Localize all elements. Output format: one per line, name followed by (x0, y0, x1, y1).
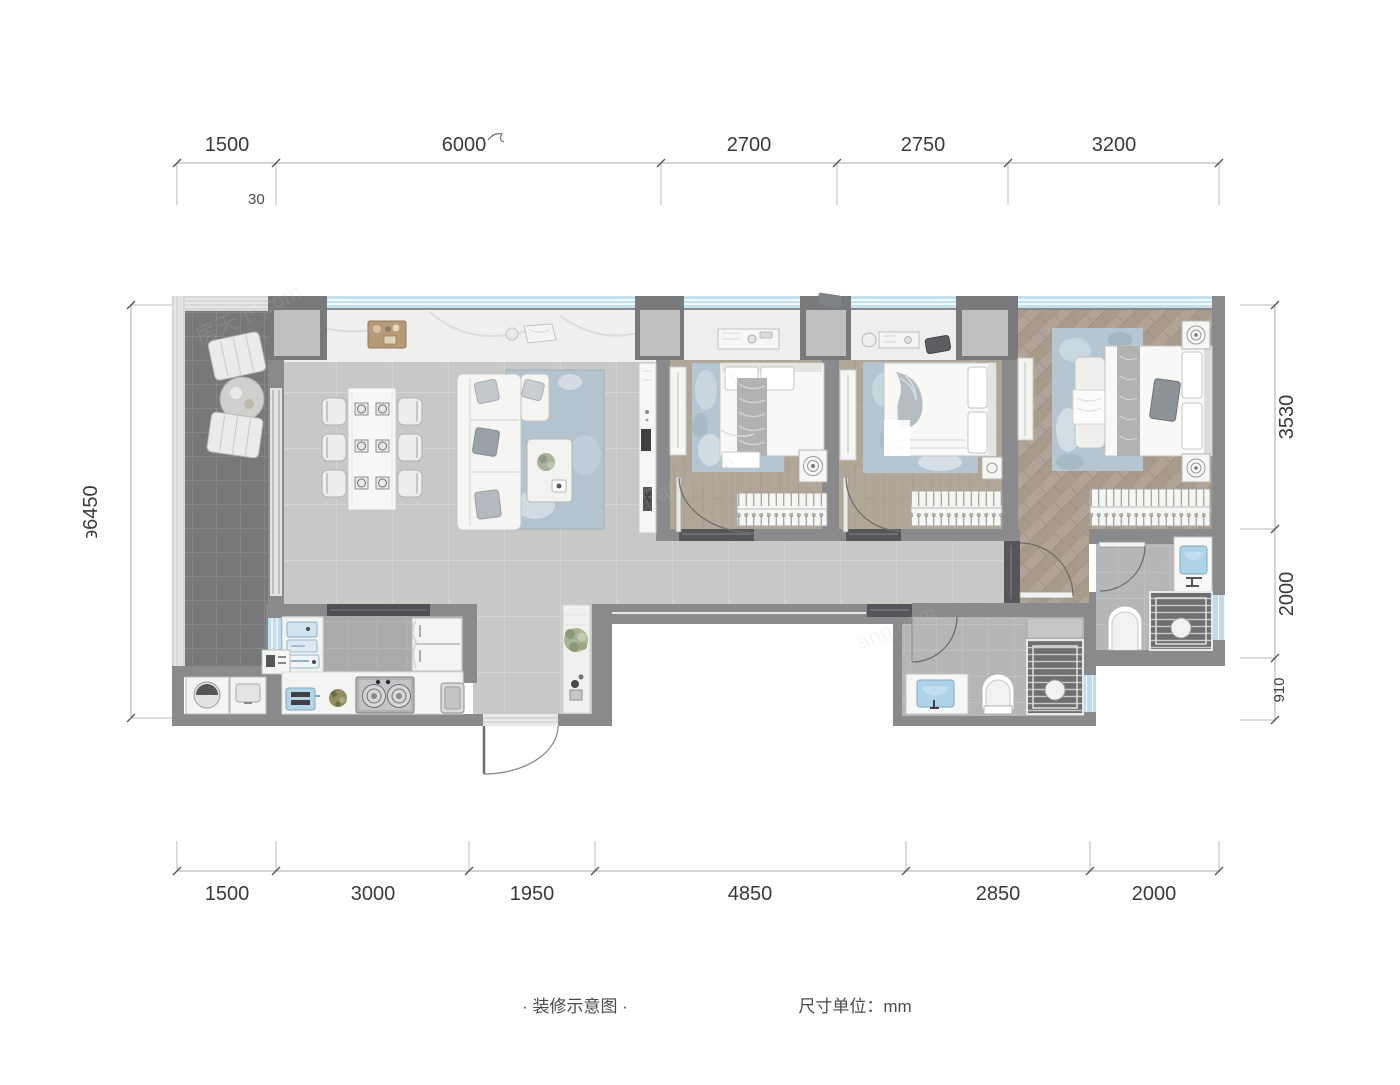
svg-text:1950: 1950 (510, 883, 555, 905)
svg-text:2000: 2000 (1132, 883, 1177, 905)
svg-text:1500: 1500 (205, 134, 250, 156)
svg-text:· 装修示意图 ·: · 装修示意图 · (522, 997, 628, 1016)
svg-text:1500: 1500 (205, 883, 250, 905)
svg-text:6000: 6000 (442, 134, 487, 156)
svg-text:2700: 2700 (727, 134, 772, 156)
svg-text:2750: 2750 (901, 134, 946, 156)
svg-text:4850: 4850 (728, 883, 773, 905)
svg-text:3200: 3200 (1092, 134, 1137, 156)
svg-text:3000: 3000 (351, 883, 396, 905)
svg-text:30: 30 (248, 191, 265, 208)
svg-text:3530: 3530 (1276, 395, 1298, 440)
svg-text:910: 910 (1271, 677, 1288, 702)
svg-text:2850: 2850 (976, 883, 1021, 905)
svg-text:϶6450: ϶6450 (80, 485, 102, 538)
svg-text:尺寸单位：mm: 尺寸单位：mm (798, 997, 911, 1016)
svg-text:2000: 2000 (1276, 572, 1298, 617)
